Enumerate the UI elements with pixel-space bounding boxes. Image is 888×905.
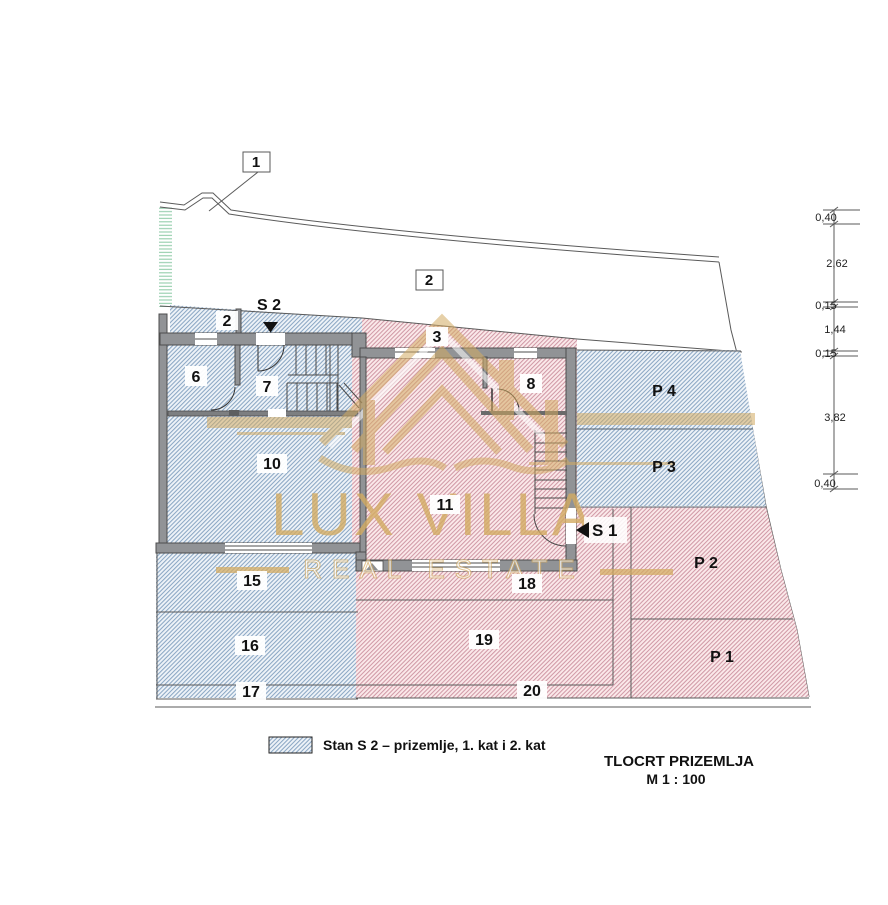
svg-text:15: 15 (243, 573, 261, 590)
svg-text:Stan S 2 – prizemlje, 1. kat i: Stan S 2 – prizemlje, 1. kat i 2. kat (323, 737, 546, 753)
svg-text:0,15: 0,15 (815, 300, 836, 312)
svg-text:P 1: P 1 (710, 649, 734, 666)
svg-text:6: 6 (192, 369, 201, 386)
svg-text:18: 18 (518, 576, 536, 593)
svg-text:P 3: P 3 (652, 459, 676, 476)
svg-text:1: 1 (252, 154, 260, 171)
svg-text:2: 2 (223, 313, 232, 330)
svg-text:0,15: 0,15 (815, 348, 836, 360)
svg-text:11: 11 (437, 497, 454, 514)
svg-text:0,40: 0,40 (814, 478, 835, 490)
svg-text:S 1: S 1 (592, 521, 618, 540)
svg-text:P 4: P 4 (652, 383, 676, 400)
svg-text:20: 20 (523, 683, 541, 700)
svg-text:M 1 : 100: M 1 : 100 (646, 771, 705, 787)
svg-text:1,44: 1,44 (824, 324, 845, 336)
svg-text:8: 8 (527, 376, 536, 393)
svg-text:17: 17 (242, 684, 260, 701)
svg-text:2: 2 (425, 272, 433, 289)
svg-text:2,62: 2,62 (826, 258, 847, 270)
svg-text:TLOCRT PRIZEMLJA: TLOCRT PRIZEMLJA (604, 753, 754, 770)
svg-text:0,40: 0,40 (815, 212, 836, 224)
svg-text:S 2: S 2 (257, 297, 281, 314)
svg-text:16: 16 (241, 638, 259, 655)
svg-text:3: 3 (433, 329, 442, 346)
svg-text:LUX VILLA: LUX VILLA (271, 481, 595, 548)
svg-text:7: 7 (263, 379, 272, 396)
svg-text:10: 10 (263, 456, 281, 473)
svg-text:REAL ESTATE: REAL ESTATE (303, 554, 584, 584)
svg-text:3,82: 3,82 (824, 412, 845, 424)
svg-text:19: 19 (475, 632, 493, 649)
svg-text:P 2: P 2 (694, 555, 718, 572)
